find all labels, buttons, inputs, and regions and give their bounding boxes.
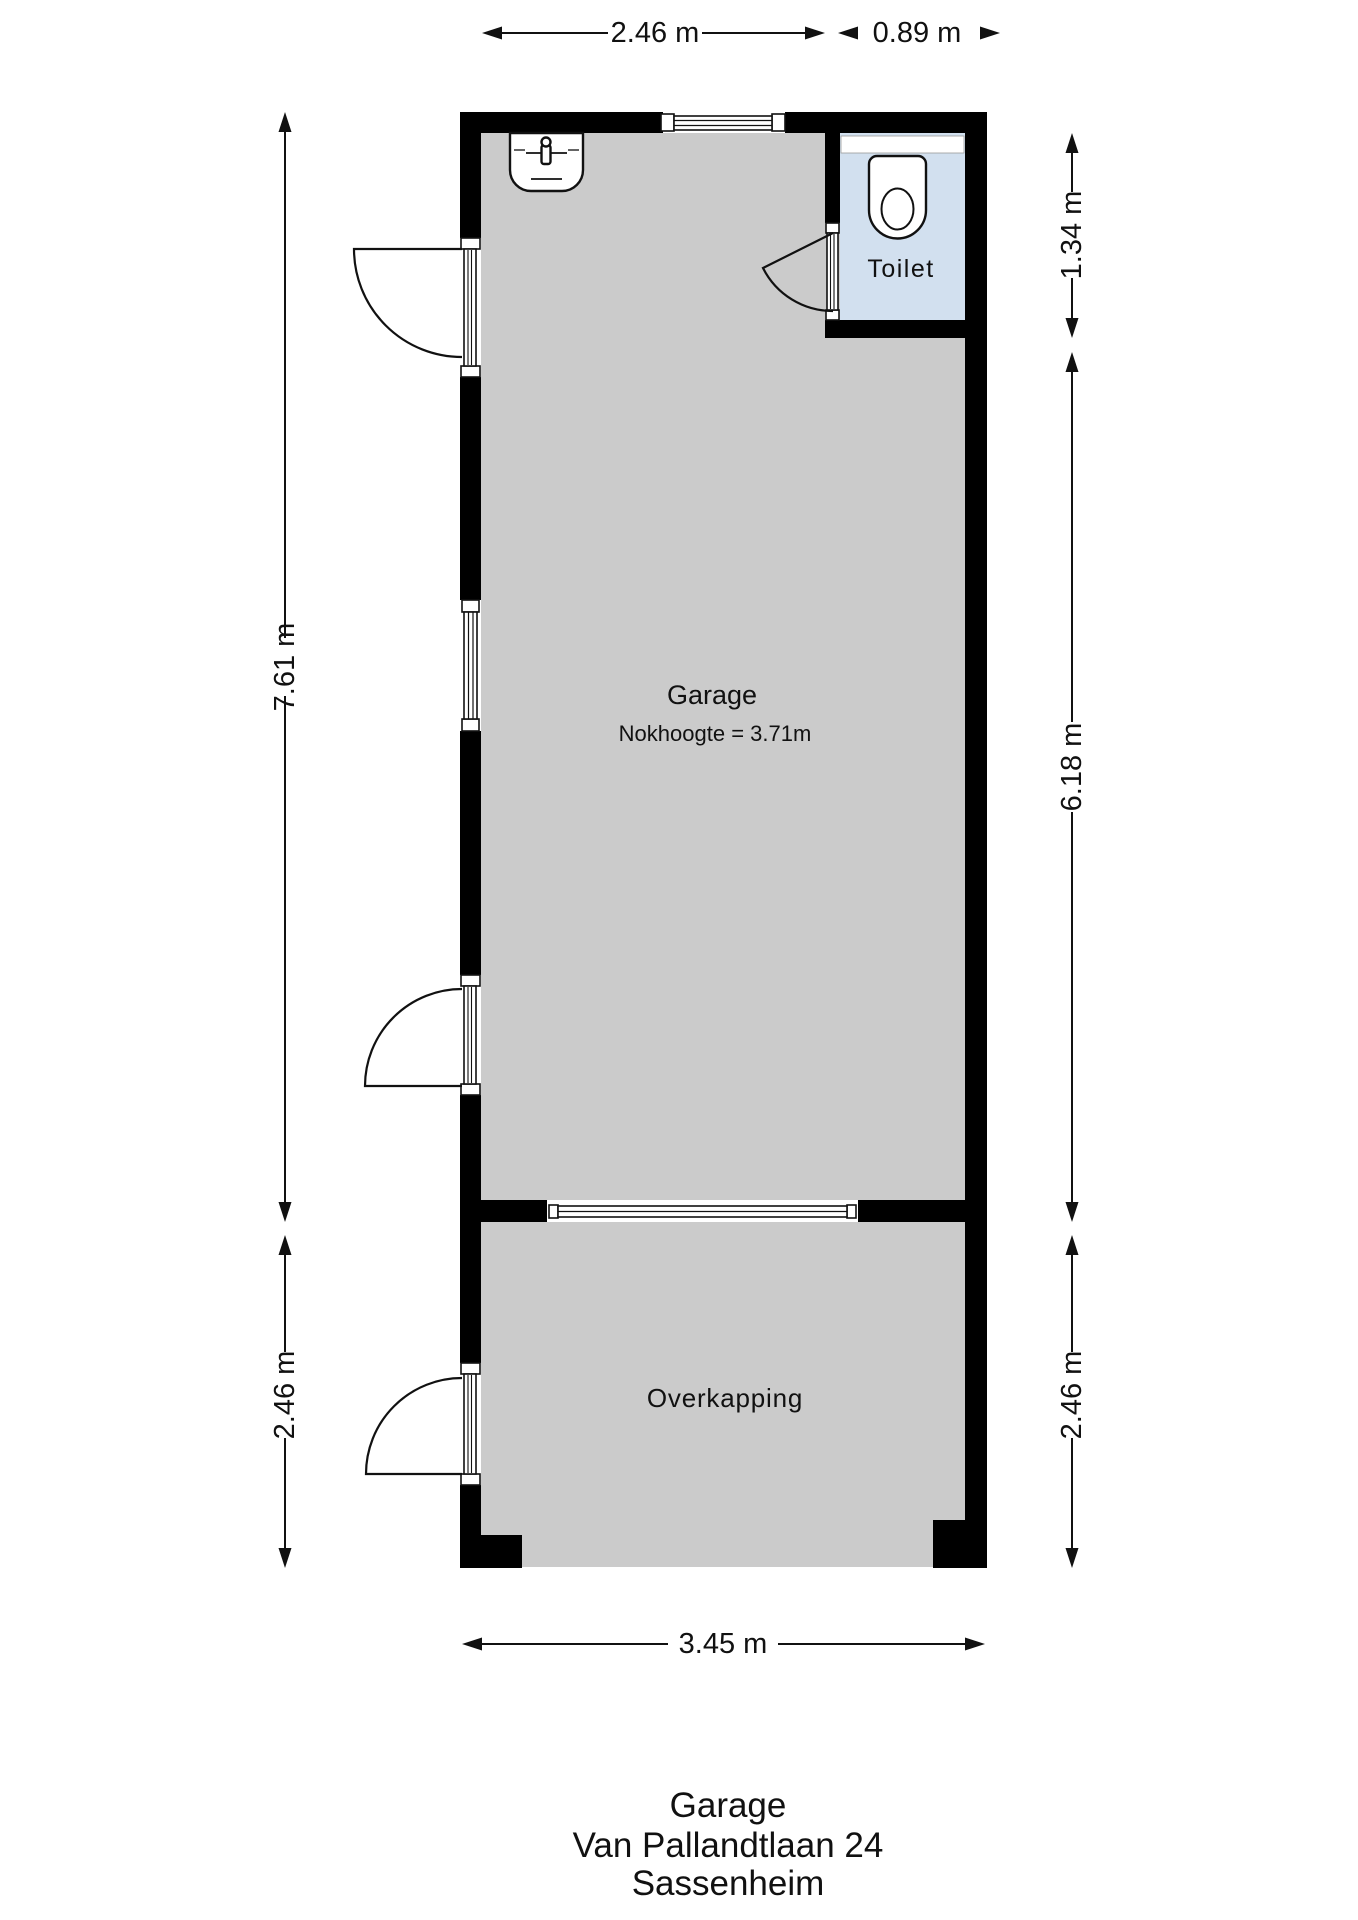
dim-arrow-left — [482, 27, 502, 40]
door-left-middle — [365, 975, 480, 1095]
dim-arrow-right — [965, 1638, 985, 1651]
dim-arrow-down — [1066, 1548, 1079, 1568]
door-left-upper-arc — [354, 249, 462, 357]
dim-label-right-overkapping: 2.46 m — [1056, 1351, 1088, 1440]
dim-arrow-right — [980, 27, 1000, 40]
wall-top-right — [785, 112, 987, 133]
dim-arrow-down — [279, 1548, 292, 1568]
title-line-3: Sassenheim — [632, 1864, 825, 1903]
dim-arrow-up — [1066, 133, 1079, 153]
dim-arrow-down — [279, 1202, 292, 1222]
window-divider — [547, 1202, 858, 1220]
toilet-room-label: Toilet — [867, 255, 934, 283]
wall-post-bottom-right — [933, 1520, 987, 1568]
wall-left-3 — [460, 731, 481, 975]
floorplan-drawing: Garage Nokhoogte = 3.71m Toilet Overkapp… — [0, 0, 1358, 1920]
wall-left-4 — [460, 1095, 481, 1200]
wall-toilet-bottom — [825, 320, 965, 338]
wall-left-1 — [460, 133, 481, 238]
dim-arrow-up — [279, 1235, 292, 1255]
dim-left-overkapping: 2.46 m — [269, 1235, 301, 1568]
overkapping-room-label: Overkapping — [647, 1383, 803, 1413]
dim-label-right-toilet: 1.34 m — [1056, 191, 1088, 280]
dim-label-bottom: 3.45 m — [679, 1628, 768, 1660]
title-block: Garage Van Pallandtlaan 24 Sassenheim — [573, 1786, 884, 1903]
dim-arrow-down — [1066, 1202, 1079, 1222]
dim-label-top-garage: 2.46 m — [611, 17, 700, 49]
dim-top-garage: 2.46 m — [482, 17, 825, 49]
wall-toilet-partition — [825, 133, 840, 223]
wall-left-5 — [460, 1222, 481, 1363]
floors — [481, 133, 965, 1567]
dim-arrow-up — [1066, 1235, 1079, 1255]
dim-label-left-overkapping: 2.46 m — [269, 1351, 301, 1440]
garage-room-sublabel: Nokhoogte = 3.71m — [619, 721, 812, 746]
floorplan-page: Garage Nokhoogte = 3.71m Toilet Overkapp… — [0, 0, 1358, 1920]
wall-top-left — [460, 112, 663, 133]
window-top — [661, 114, 785, 131]
dim-right-garage: 6.18 m — [1056, 352, 1088, 1222]
dim-label-right-garage: 6.18 m — [1056, 723, 1088, 812]
dim-top-toilet: 0.89 m — [838, 17, 1000, 49]
title-line-1: Garage — [670, 1786, 787, 1825]
dim-label-top-toilet: 0.89 m — [873, 17, 962, 49]
dim-arrow-up — [1066, 352, 1079, 372]
dim-right-toilet: 1.34 m — [1056, 133, 1088, 338]
sink-icon — [510, 133, 583, 191]
dim-left-garage: 7.61 m — [269, 112, 301, 1222]
door-left-upper — [354, 238, 480, 377]
door-left-lower — [366, 1363, 480, 1485]
wall-post-bottom-left — [460, 1535, 522, 1568]
title-line-2: Van Pallandtlaan 24 — [573, 1826, 884, 1865]
wall-divider-right — [858, 1200, 965, 1222]
dim-arrow-left — [838, 27, 858, 40]
dim-arrow-down — [1066, 318, 1079, 338]
window-left — [462, 600, 479, 731]
dim-arrow-right — [805, 27, 825, 40]
dim-bottom: 3.45 m — [462, 1628, 985, 1660]
dim-right-overkapping: 2.46 m — [1056, 1235, 1088, 1568]
wall-right — [965, 133, 987, 1520]
door-left-middle-arc — [365, 989, 462, 1086]
dim-arrow-left — [462, 1638, 482, 1651]
door-left-lower-arc — [366, 1378, 462, 1474]
wall-left-2 — [460, 377, 481, 600]
wall-divider-left — [460, 1200, 547, 1222]
garage-room-label: Garage — [667, 680, 757, 710]
dim-arrow-up — [279, 112, 292, 132]
